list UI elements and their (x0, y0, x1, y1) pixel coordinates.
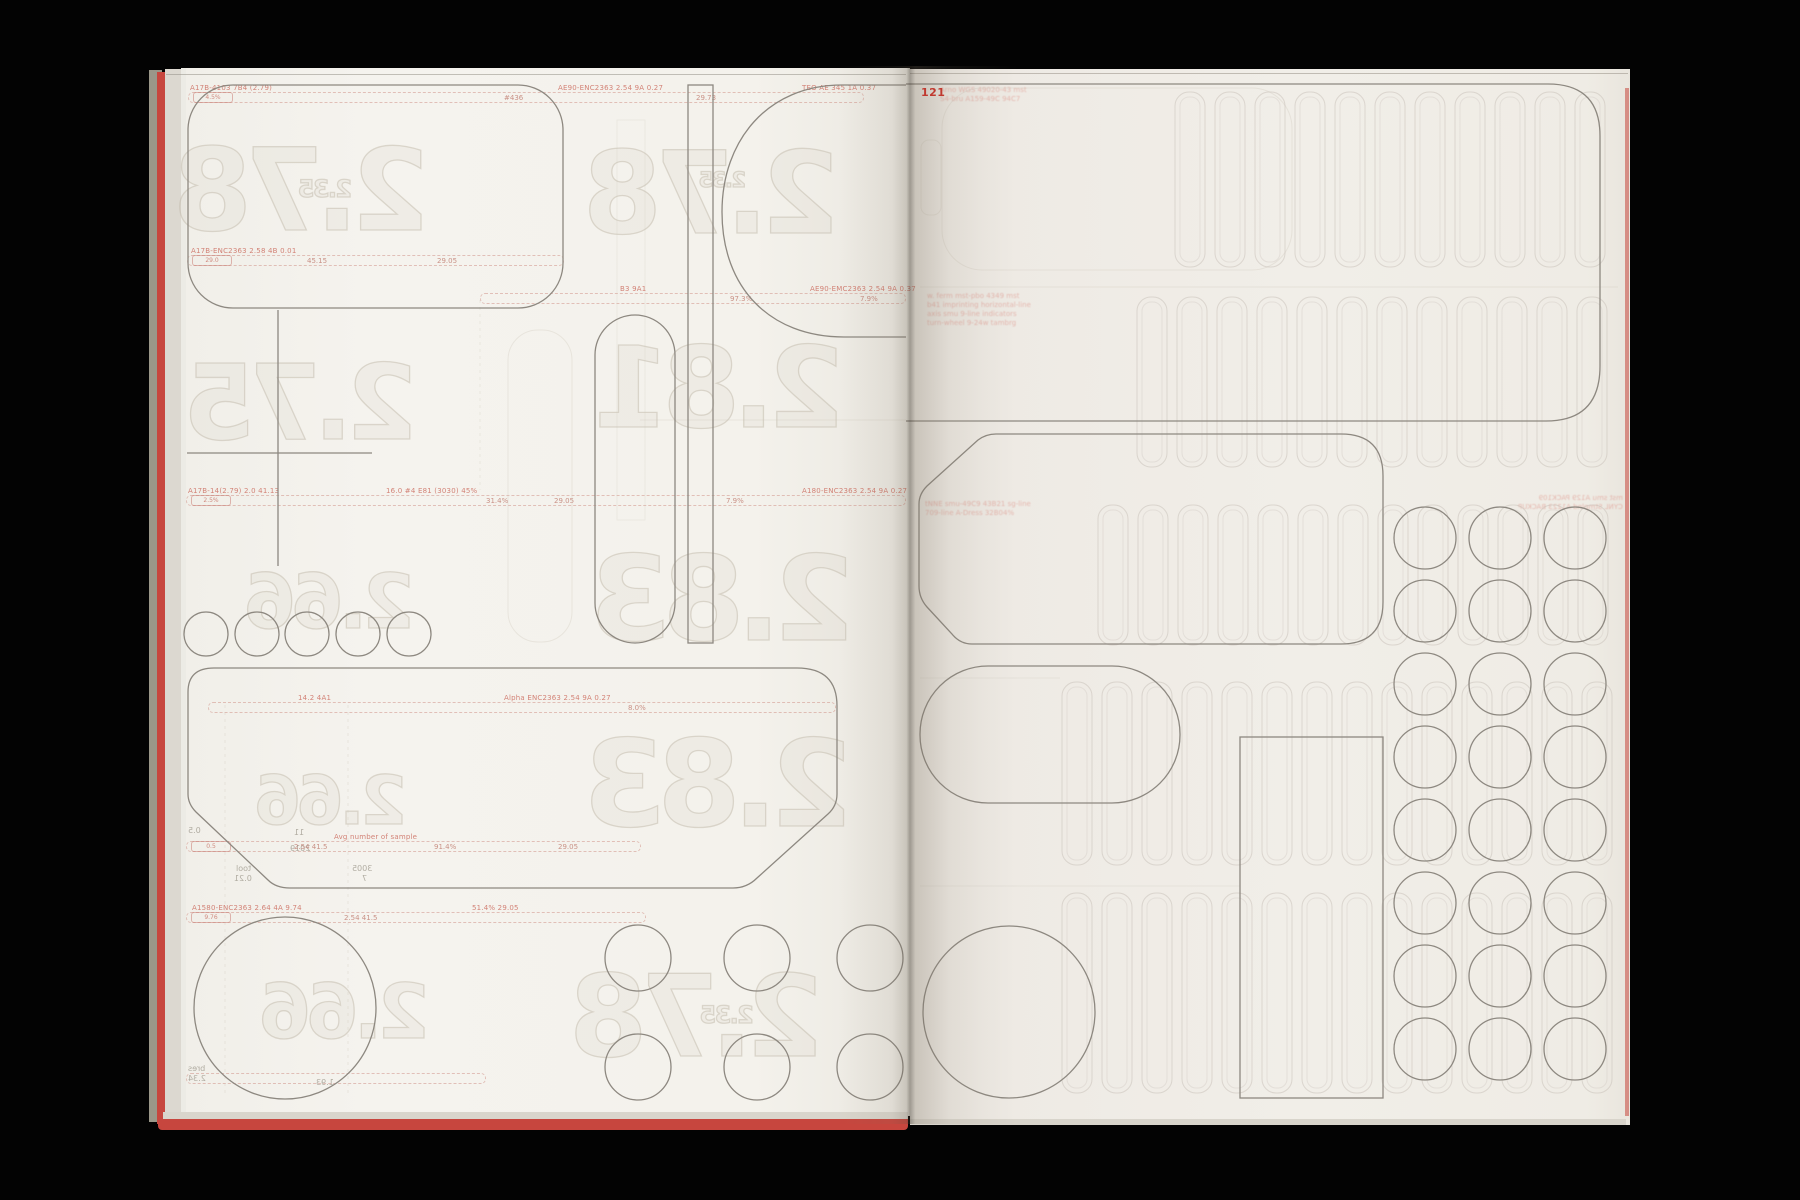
cut-grid-circle (1469, 872, 1531, 934)
slot-ghost-inner (1307, 898, 1327, 1088)
cut-pill-vertical (595, 315, 675, 643)
cut-tall-rect (688, 85, 713, 643)
cut-large-circle-left (194, 917, 376, 1099)
cut-medium-circle (837, 1034, 903, 1100)
slot-ghost-inner (1227, 898, 1247, 1088)
slot-ghost-inner (1540, 97, 1560, 262)
ghost-shape (508, 330, 572, 642)
cut-medium-circle (605, 1034, 671, 1100)
cut-pill-horizontal (920, 666, 1180, 803)
cut-hexagon (188, 668, 837, 888)
slot-ghost-inner (1460, 97, 1480, 262)
slot-ghost-inner (1383, 510, 1403, 640)
cut-grid-circle (1394, 653, 1456, 715)
slot-ghost-inner (1587, 687, 1607, 860)
cut-small-circle (285, 612, 329, 656)
slot-ghost-inner (1147, 687, 1167, 860)
slot-ghost-inner (1423, 510, 1443, 640)
slot-ghost-inner (1067, 687, 1087, 860)
cut-large-circle-right (923, 926, 1095, 1098)
cut-grid-circle (1469, 507, 1531, 569)
slot-ghost-inner (1382, 302, 1402, 462)
cut-grid-circle (1469, 945, 1531, 1007)
slot-ghost-inner (1422, 302, 1442, 462)
ghost-lines-group (225, 88, 1618, 1095)
cut-grid-circle (1469, 1018, 1531, 1080)
cut-grid-circle (1544, 945, 1606, 1007)
cut-grid-circle (1544, 653, 1606, 715)
book-photo-stage: 2.782.352.782.352.752.812.662.832.662.83… (0, 0, 1800, 1200)
slot-ghost-inner (1263, 510, 1283, 640)
slot-ghost-inner (1427, 898, 1447, 1088)
slot-ghost-inner (1347, 687, 1367, 860)
cut-grid-circle (1469, 580, 1531, 642)
slot-ghost-inner (1467, 687, 1487, 860)
slot-ghost-inner (1503, 510, 1523, 640)
slot-ghost-inner (1147, 898, 1167, 1088)
cut-medium-circle (724, 925, 790, 991)
slot-ghost-inner (1300, 97, 1320, 262)
slot-ghost-inner (1220, 97, 1240, 262)
slot-ghost-inner (1547, 898, 1567, 1088)
slot-ghost-inner (1302, 302, 1322, 462)
slot-ghosts-group (1062, 92, 1612, 1093)
slot-ghost-inner (1183, 510, 1203, 640)
die-cut-overlay (0, 0, 1800, 1200)
slot-ghost-inner (1187, 687, 1207, 860)
cut-big-rect-right (906, 84, 1600, 421)
slot-ghost-inner (1182, 302, 1202, 462)
cut-grid-circle (1544, 872, 1606, 934)
slot-ghost-inner (1542, 302, 1562, 462)
slot-ghost-inner (1340, 97, 1360, 262)
ghost-shape (921, 140, 941, 215)
slot-ghost-inner (1467, 898, 1487, 1088)
slot-ghost-inner (1502, 302, 1522, 462)
cut-medium-circle (724, 1034, 790, 1100)
cut-small-circle (336, 612, 380, 656)
slot-ghost-inner (1342, 302, 1362, 462)
slot-ghost-inner (1107, 898, 1127, 1088)
slot-ghost-inner (1507, 898, 1527, 1088)
slot-ghost-inner (1222, 302, 1242, 462)
slot-ghost-inner (1260, 97, 1280, 262)
slot-ghost-inner (1500, 97, 1520, 262)
cut-octagon (919, 434, 1383, 644)
slot-ghost-inner (1267, 687, 1287, 860)
slot-ghost-inner (1303, 510, 1323, 640)
slot-ghost-inner (1227, 687, 1247, 860)
cut-small-circle (235, 612, 279, 656)
cut-medium-circle (605, 925, 671, 991)
slot-ghost-inner (1420, 97, 1440, 262)
cut-grid-circle (1469, 799, 1531, 861)
slot-ghost-inner (1267, 898, 1287, 1088)
slot-ghost-inner (1142, 302, 1162, 462)
slot-ghost-inner (1583, 510, 1603, 640)
cut-grid-circle (1469, 726, 1531, 788)
cut-grid-circle (1544, 1018, 1606, 1080)
slot-ghost-inner (1187, 898, 1207, 1088)
cut-rounded-rect-topleft (188, 85, 563, 308)
slot-ghost-inner (1463, 510, 1483, 640)
slot-ghost-inner (1223, 510, 1243, 640)
cut-grid-circle (1544, 507, 1606, 569)
slot-ghost-inner (1067, 898, 1087, 1088)
slot-ghost-inner (1343, 510, 1363, 640)
slot-ghost-inner (1107, 687, 1127, 860)
cut-medium-circle (837, 925, 903, 991)
ghost-shape (617, 120, 645, 520)
cut-lines-group (184, 84, 1606, 1100)
slot-ghost-inner (1307, 687, 1327, 860)
cut-small-circle (387, 612, 431, 656)
page-number: 121 (921, 86, 945, 99)
cut-grid-circle (1544, 799, 1606, 861)
slot-ghost-inner (1380, 97, 1400, 262)
cut-small-circle (184, 612, 228, 656)
slot-ghost-inner (1262, 302, 1282, 462)
cut-grid-circle (1394, 872, 1456, 934)
cut-capsule-top (722, 85, 906, 337)
slot-ghost-inner (1580, 97, 1600, 262)
cut-grid-circle (1469, 653, 1531, 715)
cut-grid-circle (1544, 726, 1606, 788)
slot-ghost-inner (1462, 302, 1482, 462)
cut-tall-rect-right (1240, 737, 1383, 1098)
slot-ghost-inner (1180, 97, 1200, 262)
cut-grid-circle (1544, 580, 1606, 642)
slot-ghost-inner (1103, 510, 1123, 640)
slot-ghost-inner (1387, 687, 1407, 860)
slot-ghost-inner (1347, 898, 1367, 1088)
slot-ghost-inner (1143, 510, 1163, 640)
